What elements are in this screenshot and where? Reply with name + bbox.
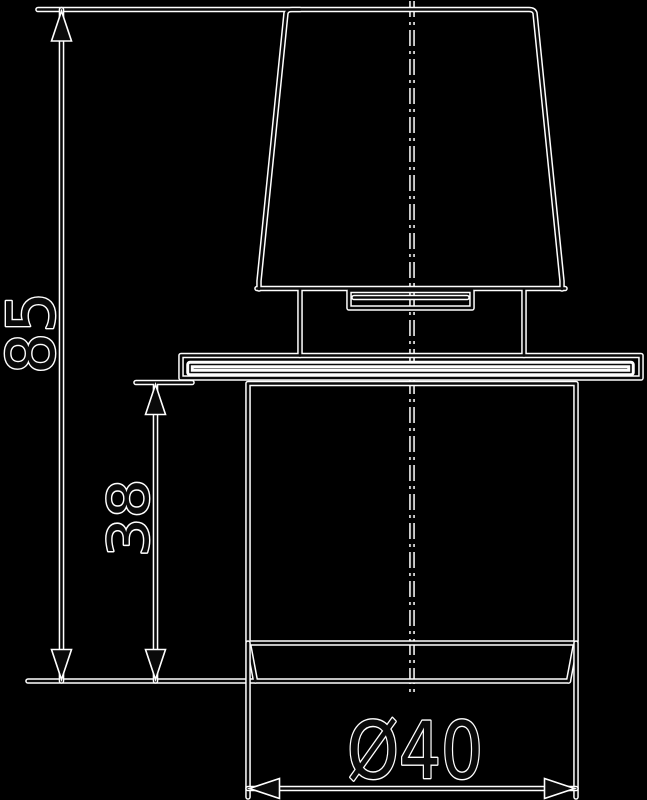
flange-lip-halo bbox=[190, 365, 631, 373]
dim38-arrow-up-icon bbox=[146, 385, 166, 415]
dim85-arrow-up-icon bbox=[52, 11, 72, 41]
drawing-canvas: 85 38 Ø40 bbox=[0, 0, 647, 800]
dim40-arrow-right-icon bbox=[545, 779, 575, 799]
dim85-arrow-down-icon bbox=[52, 650, 72, 680]
dim40-arrow-left-icon bbox=[250, 779, 280, 799]
dim85-label: 85 bbox=[0, 292, 70, 374]
dimension-diameter: Ø40 bbox=[248, 643, 576, 799]
dim38-label: 38 bbox=[97, 479, 162, 557]
dim38-arrow-down-icon bbox=[146, 650, 166, 680]
technical-drawing-svg: 85 38 Ø40 bbox=[0, 0, 647, 800]
dimension-overall-height: 85 bbox=[0, 10, 72, 682]
dimension-body-depth: 38 bbox=[97, 383, 192, 682]
dim40-label: Ø40 bbox=[347, 707, 483, 797]
slot-plate-halo bbox=[349, 291, 472, 309]
part-outline bbox=[28, 10, 641, 682]
